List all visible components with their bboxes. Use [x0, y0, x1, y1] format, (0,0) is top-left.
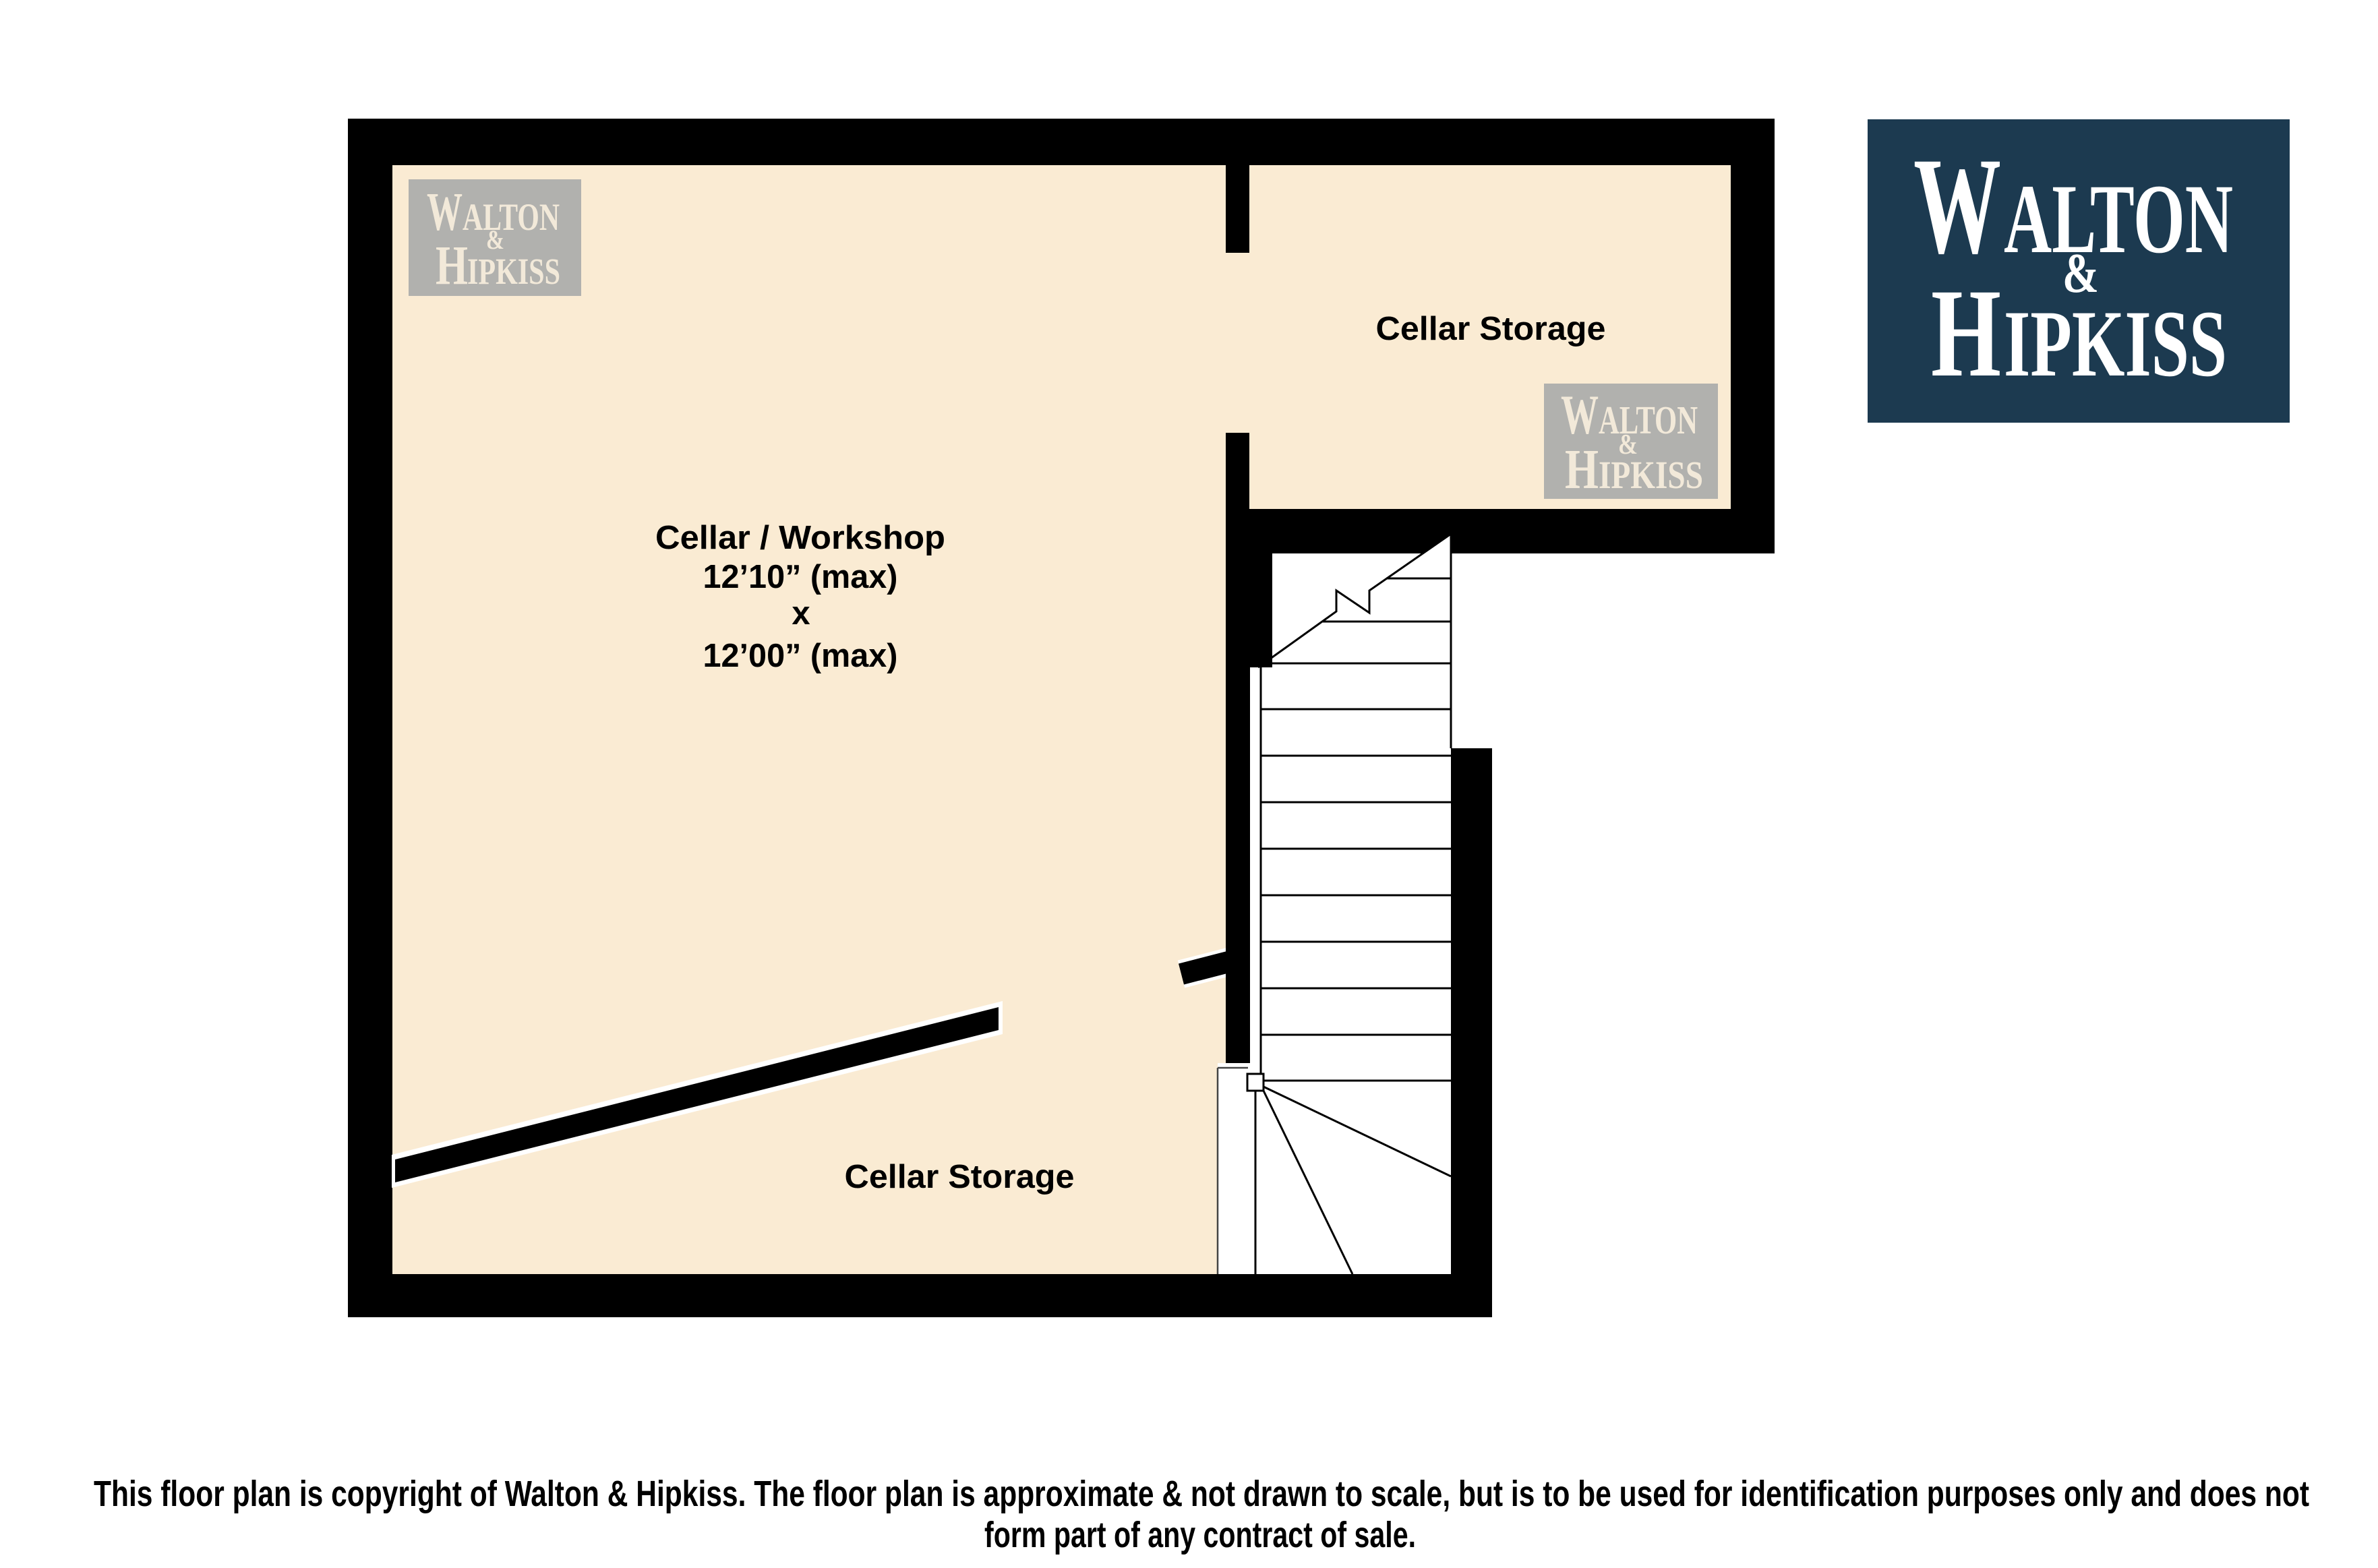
svg-text:12’10” (max): 12’10” (max) — [703, 559, 898, 595]
svg-text:form part of any contract of s: form part of any contract of sale. — [984, 1515, 1416, 1555]
svg-text:IPKISS: IPKISS — [467, 251, 560, 292]
svg-text:IPKISS: IPKISS — [2004, 291, 2227, 396]
svg-text:This floor plan is copyright o: This floor plan is copyright of Walton &… — [94, 1474, 2309, 1514]
svg-text:ALTON: ALTON — [2004, 164, 2233, 274]
svg-text:Cellar / Workshop: Cellar / Workshop — [655, 520, 945, 556]
svg-text:ALTON: ALTON — [1599, 398, 1698, 442]
svg-text:H: H — [436, 234, 468, 296]
svg-text:x: x — [792, 595, 810, 632]
svg-text:W: W — [1561, 384, 1599, 446]
svg-text:W: W — [427, 183, 463, 242]
svg-text:IPKISS: IPKISS — [1599, 453, 1703, 497]
svg-text:Cellar Storage: Cellar Storage — [845, 1159, 1075, 1195]
svg-text:H: H — [1931, 262, 2001, 403]
svg-text:Cellar Storage: Cellar Storage — [1376, 311, 1606, 347]
svg-text:12’00” (max): 12’00” (max) — [703, 638, 898, 674]
svg-text:W: W — [1913, 129, 2001, 282]
svg-text:ALTON: ALTON — [463, 196, 560, 239]
svg-text:H: H — [1565, 438, 1599, 501]
